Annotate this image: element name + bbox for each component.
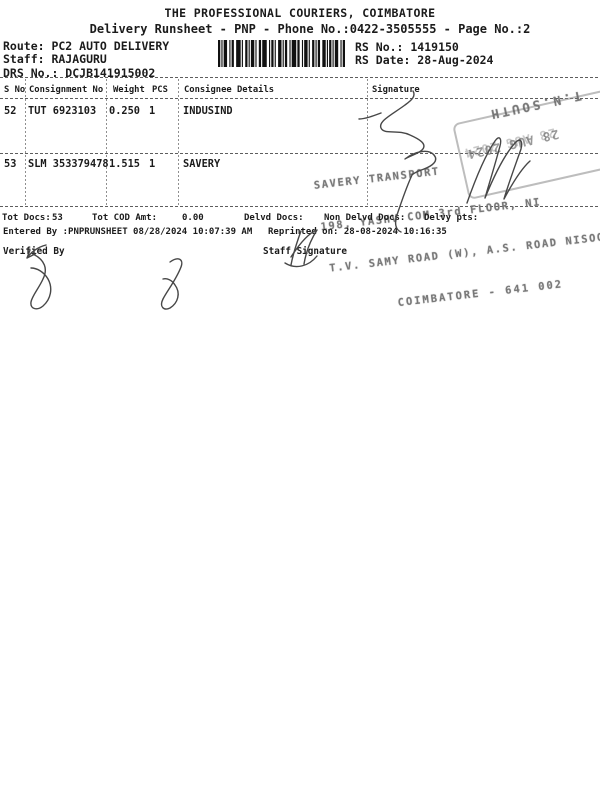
- signature-middle: [162, 259, 182, 309]
- signature-verified-by-loop: [31, 254, 51, 309]
- signature-row53: [467, 138, 530, 203]
- runsheet-document: THE PROFESSIONAL COURIERS, COIMBATORE De…: [0, 0, 600, 800]
- signature-staff: [291, 231, 301, 265]
- signature-row52: [381, 91, 436, 232]
- signature-row52-flourish: [359, 113, 381, 119]
- signature-staff-3: [285, 256, 317, 267]
- signatures-overlay: [0, 0, 600, 800]
